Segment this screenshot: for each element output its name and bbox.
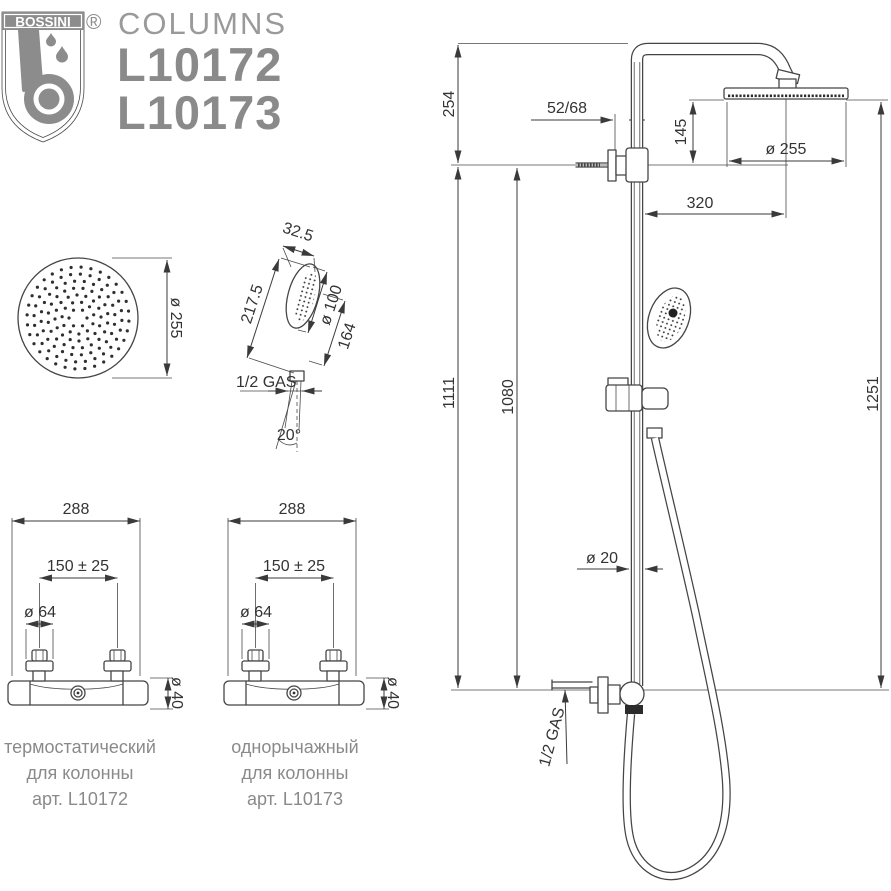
handshower-on-column <box>640 282 699 354</box>
dim-mixer-interaxis: 150 ± 25 <box>263 558 325 575</box>
hose-nut <box>647 428 662 438</box>
dim-spray-angle: 20° <box>277 427 301 444</box>
dim-handshower-top-width: 32.5 <box>280 220 315 246</box>
column-drawing: 254 1111 1080 52/68 145 ø 255 320 ø 20 1… <box>441 44 889 877</box>
dim-upper-height: 254 <box>441 91 458 118</box>
mixer-single-lever-drawing: 288 150 ± 25 ø 64 ø 40 <box>224 501 401 709</box>
water-drops-icon <box>46 33 68 63</box>
dim-overall-height: 1251 <box>865 376 882 412</box>
dim-mixer-handle-diameter: ø 64 <box>24 604 56 621</box>
catalog-sheet: COLUMNS L10172 L10173 термостатический д… <box>0 0 891 891</box>
dim-topview-diameter: ø 255 <box>167 298 184 339</box>
dim-mixer-body-diameter: ø 40 <box>384 677 401 709</box>
hose-coupling <box>625 705 643 714</box>
dim-mixer-width: 288 <box>63 501 90 518</box>
dim-pipe-diameter: ø 20 <box>586 550 618 567</box>
handshower-detail: 20° 217.5 32.5 ø 100 164 1/2 GAS <box>236 220 360 452</box>
dim-arm-reach: 320 <box>687 195 714 212</box>
bossini-logo: BOSSINI ® <box>2 11 102 142</box>
rainhead-outline <box>18 258 138 378</box>
dim-mixer-interaxis: 150 ± 25 <box>47 558 109 575</box>
dim-column-thread: 1/2 GAS <box>536 706 568 769</box>
dim-mixer-handle-diameter: ø 64 <box>240 604 272 621</box>
rainhead-top-view: ø 255 <box>18 258 184 378</box>
registered-mark: ® <box>86 11 102 34</box>
dim-head-drop: 145 <box>673 119 690 146</box>
dim-handshower-head-length: 164 <box>335 321 359 352</box>
mixer-thermostatic-drawing: 288 150 ± 25 ø 64 ø 40 <box>8 501 185 709</box>
brand-name: BOSSINI <box>15 15 71 30</box>
dim-handshower-thread: 1/2 GAS <box>236 374 296 391</box>
dim-inlet-height: 1080 <box>500 379 517 415</box>
dim-wall-offset: 52/68 <box>547 100 587 117</box>
dim-column-height: 1111 <box>441 377 458 409</box>
dim-handshower-length: 217.5 <box>238 282 267 325</box>
dim-mixer-width: 288 <box>279 501 306 518</box>
dimension-lines <box>458 45 881 764</box>
technical-drawing: BOSSINI ® ø 255 <box>0 0 891 891</box>
dim-head-diameter: ø 255 <box>766 141 807 158</box>
rainhead-side-view <box>724 69 848 99</box>
dim-mixer-body-diameter: ø 40 <box>168 677 185 709</box>
